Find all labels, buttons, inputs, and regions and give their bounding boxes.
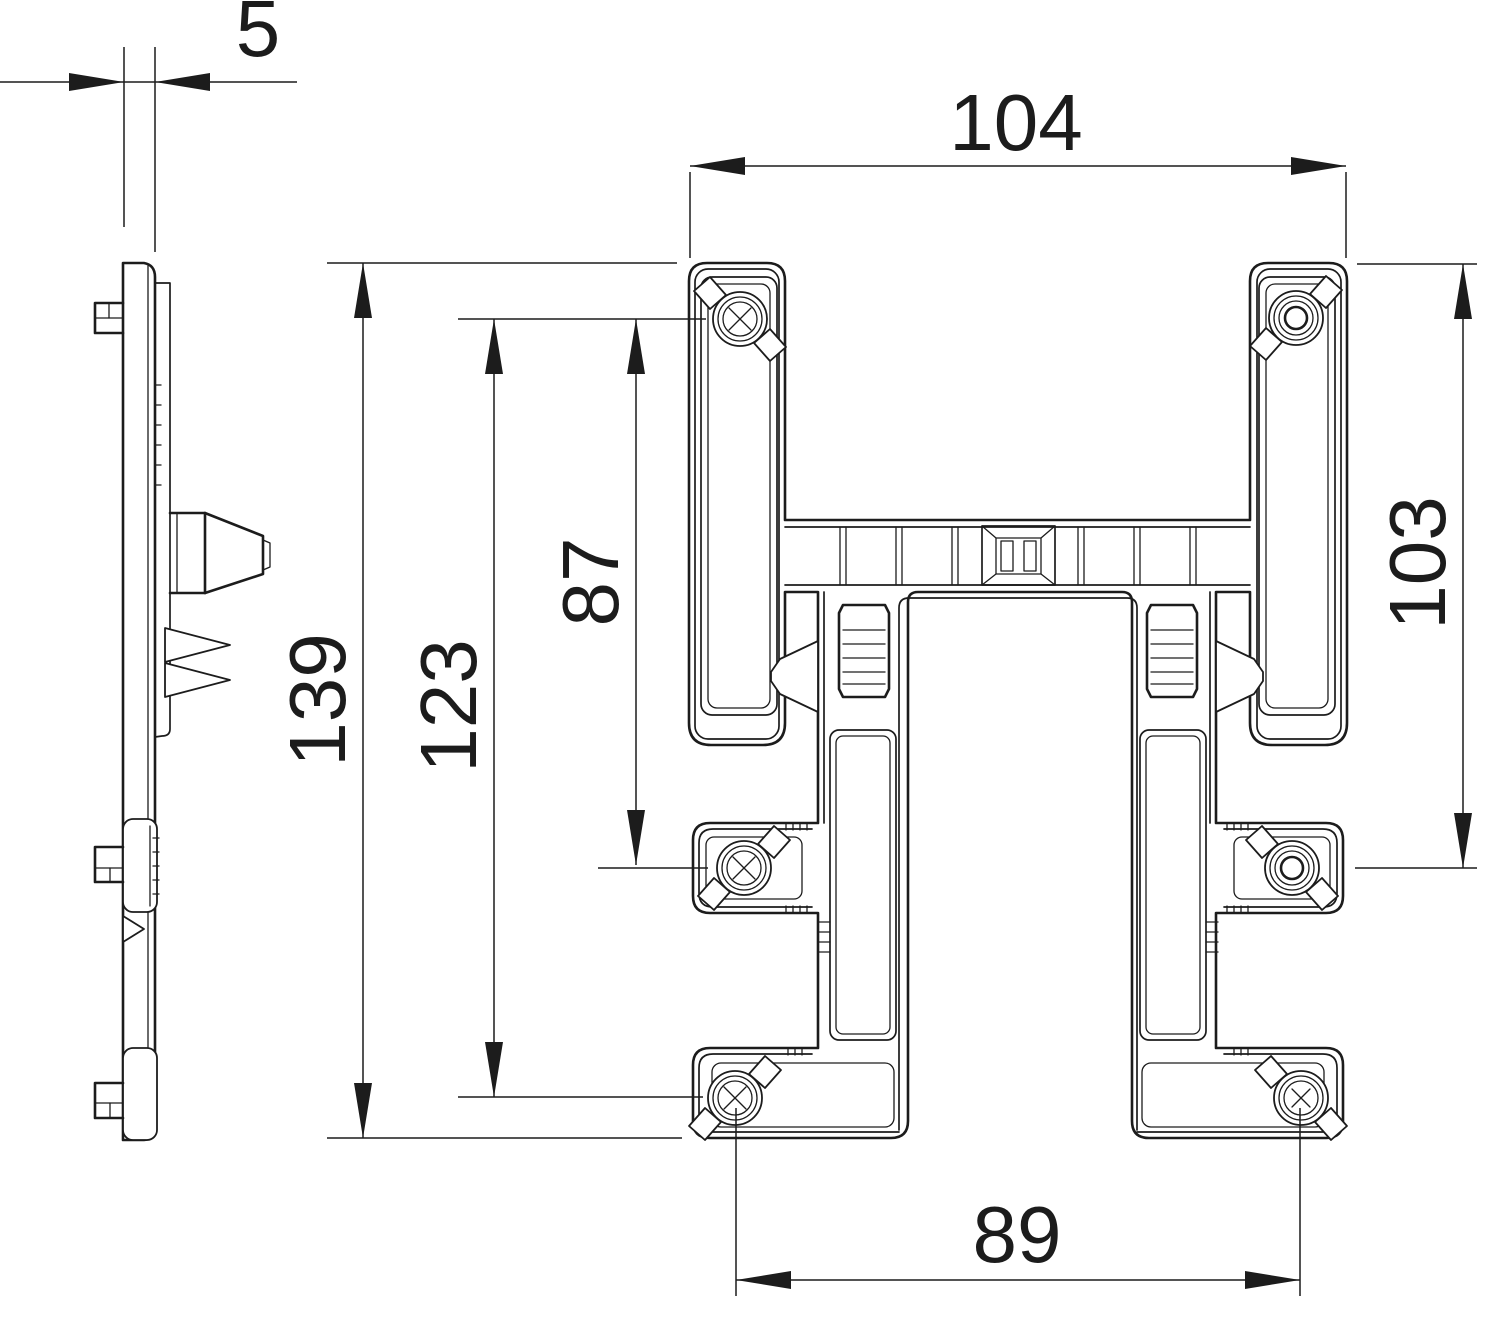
front-view <box>689 263 1347 1140</box>
side-cone <box>170 513 270 593</box>
right-leg-detail <box>1140 592 1210 1040</box>
side-bottom-boss <box>123 1048 157 1140</box>
side-chevron-clips <box>165 628 230 697</box>
dim-bottom-width-89: 89 <box>736 1108 1300 1296</box>
dim-label-87: 87 <box>546 538 635 627</box>
dim-label-89: 89 <box>973 1190 1062 1279</box>
side-plate <box>123 263 155 1140</box>
side-view <box>95 263 270 1140</box>
screw-middle-right <box>1246 826 1338 910</box>
side-middle-tab <box>95 847 123 882</box>
bracket-outer-contour <box>689 263 1347 1138</box>
side-v-notch <box>123 916 144 942</box>
side-top-tab <box>95 303 123 333</box>
dim-label-139: 139 <box>273 633 362 766</box>
dim-right-103: 103 <box>1355 264 1477 868</box>
dim-top-width-104: 104 <box>690 78 1346 258</box>
right-ribbed-block <box>1147 605 1197 697</box>
dim-screws-123: 123 <box>404 319 706 1097</box>
screw-middle-left <box>698 826 790 910</box>
dim-label-123: 123 <box>404 639 493 772</box>
dim-label-104: 104 <box>949 78 1082 167</box>
dim-label-103: 103 <box>1373 496 1462 629</box>
technical-drawing: 5 104 139 123 <box>0 0 1500 1317</box>
right-pointer <box>1216 641 1263 712</box>
side-middle-boss <box>123 819 159 912</box>
drawing-canvas: 5 104 139 123 <box>0 0 1500 1317</box>
serration-ticks <box>786 823 1248 1055</box>
center-slot <box>982 526 1055 585</box>
left-ribbed-block <box>839 605 889 697</box>
dim-label-5: 5 <box>236 0 281 73</box>
dim-screws-87: 87 <box>546 319 708 868</box>
left-leg-detail <box>824 592 896 1040</box>
left-pointer <box>771 641 818 712</box>
side-bottom-tab <box>95 1083 123 1118</box>
dim-thickness-5: 5 <box>0 0 297 252</box>
